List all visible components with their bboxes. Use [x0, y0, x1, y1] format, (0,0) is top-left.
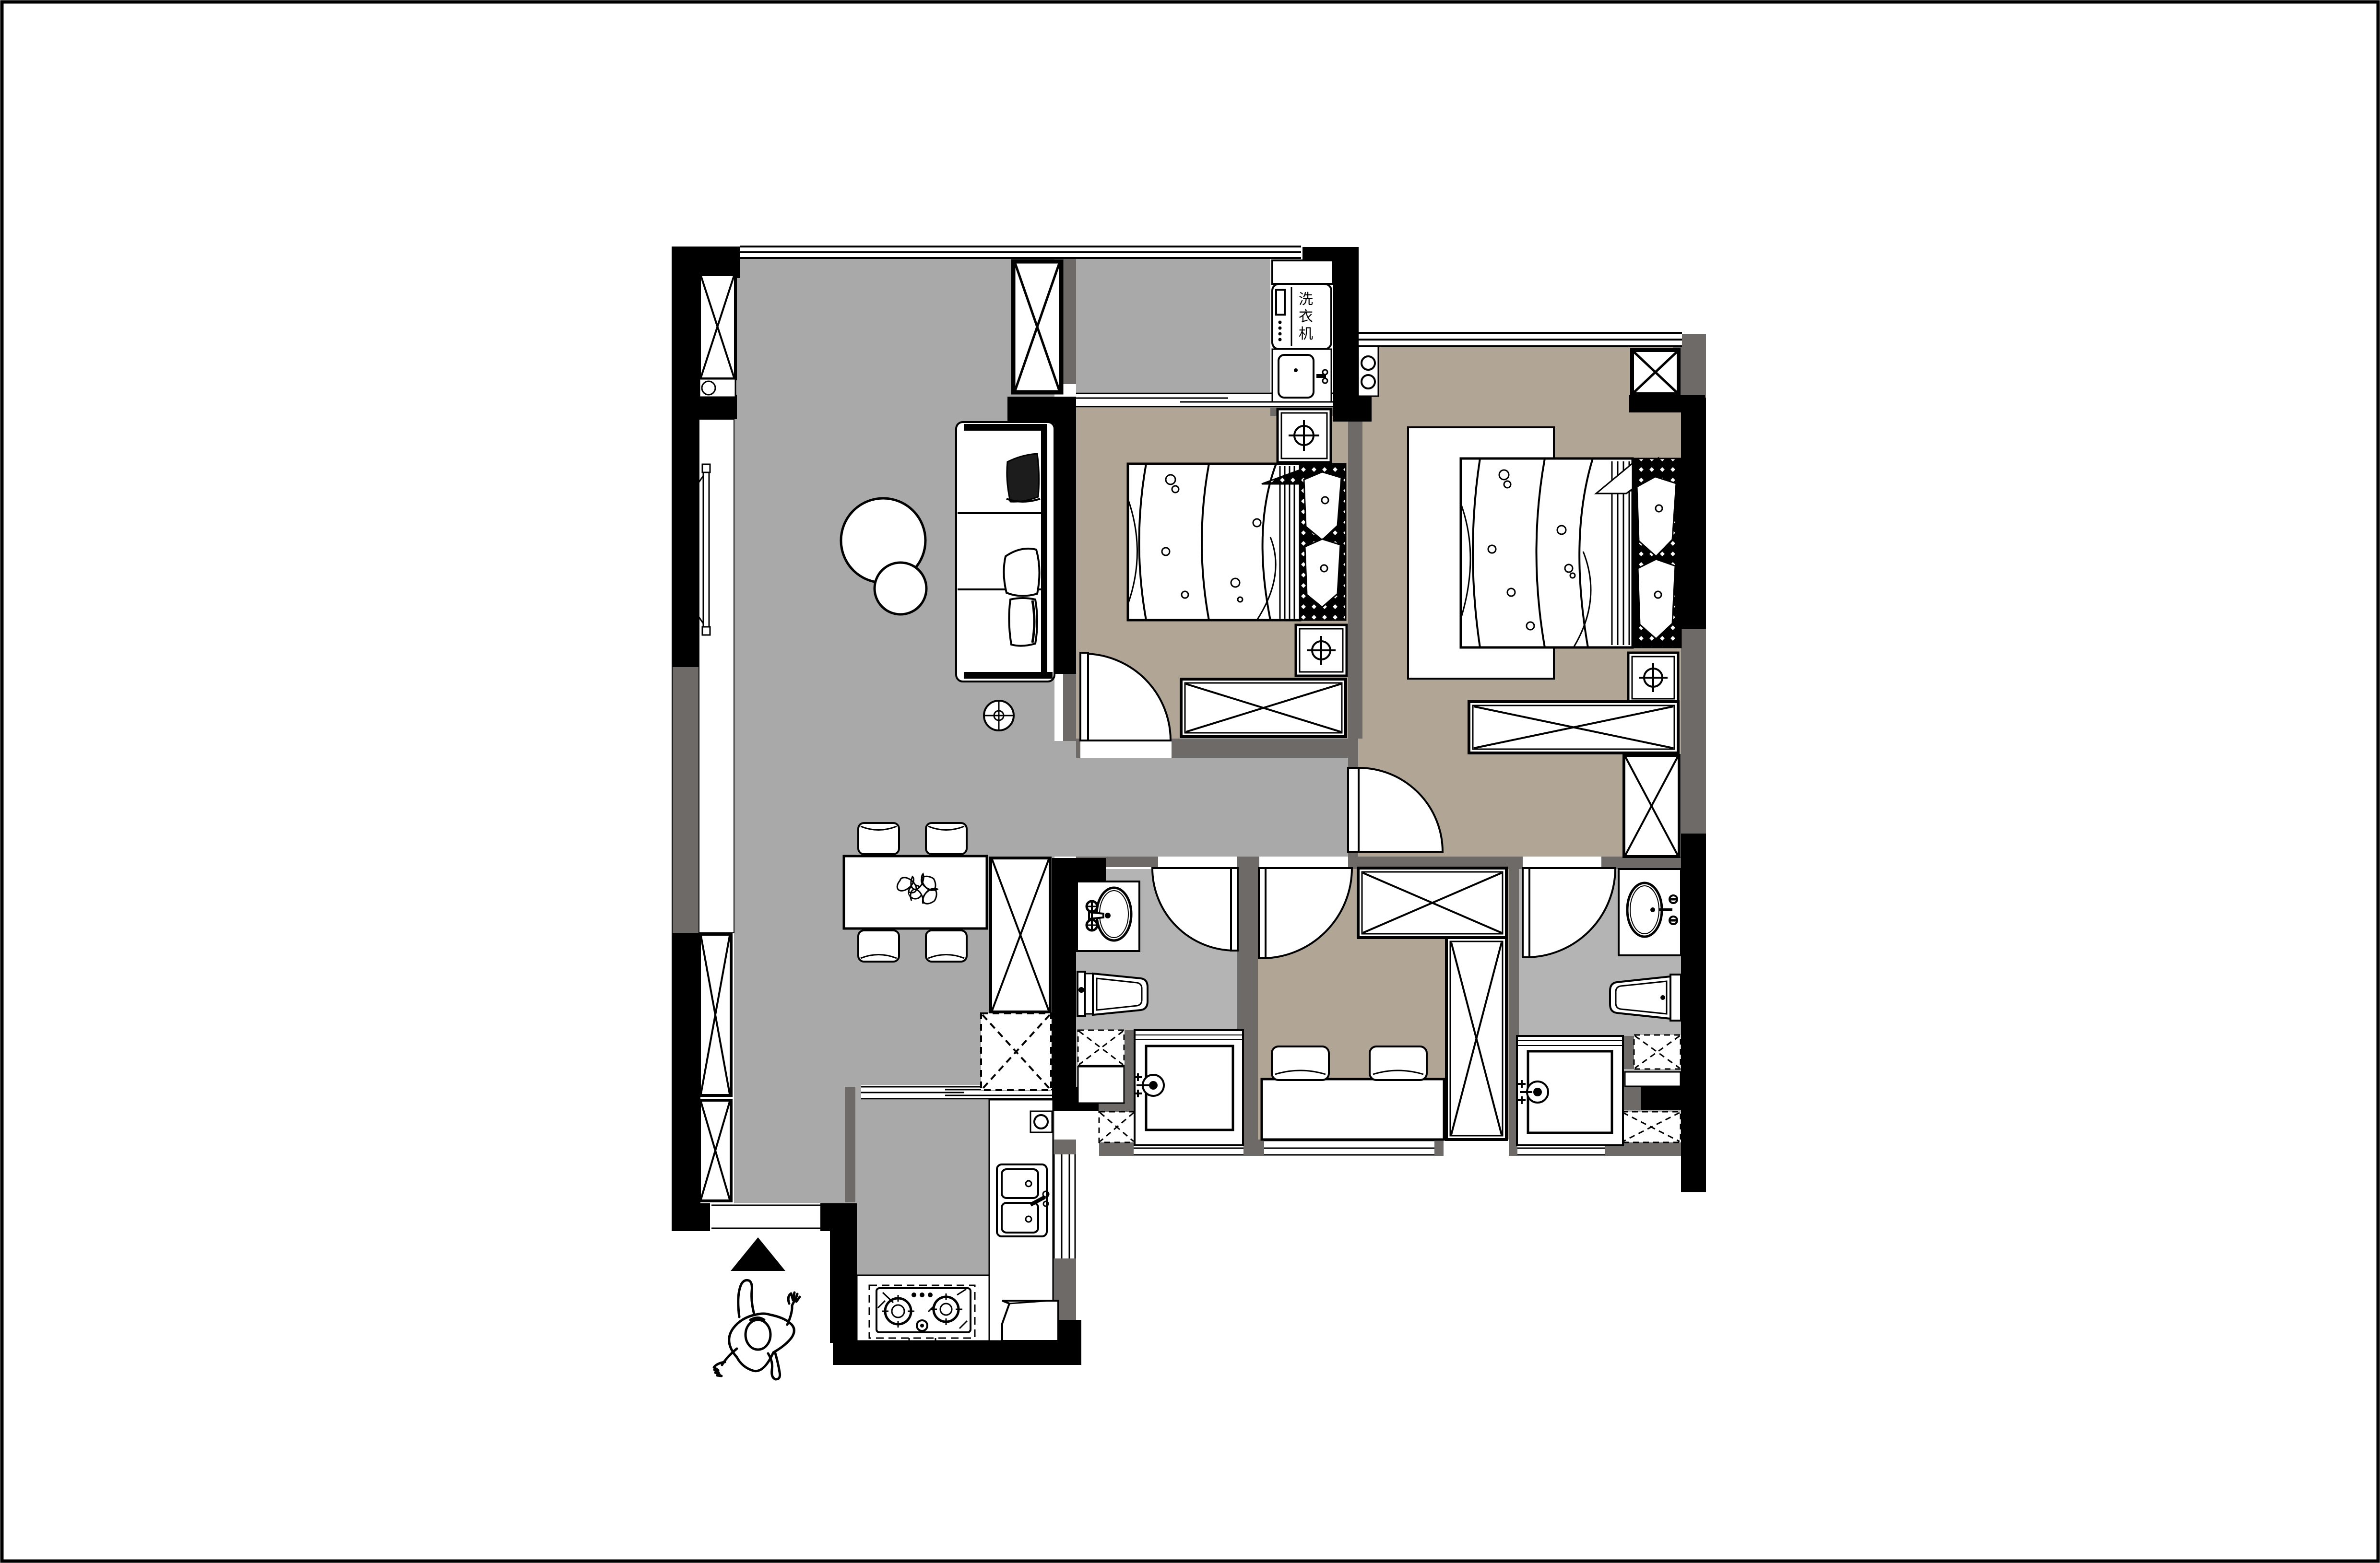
- svg-text:洗: 洗: [1299, 292, 1313, 307]
- svg-text:机: 机: [1299, 326, 1313, 342]
- svg-text:衣: 衣: [1299, 309, 1313, 325]
